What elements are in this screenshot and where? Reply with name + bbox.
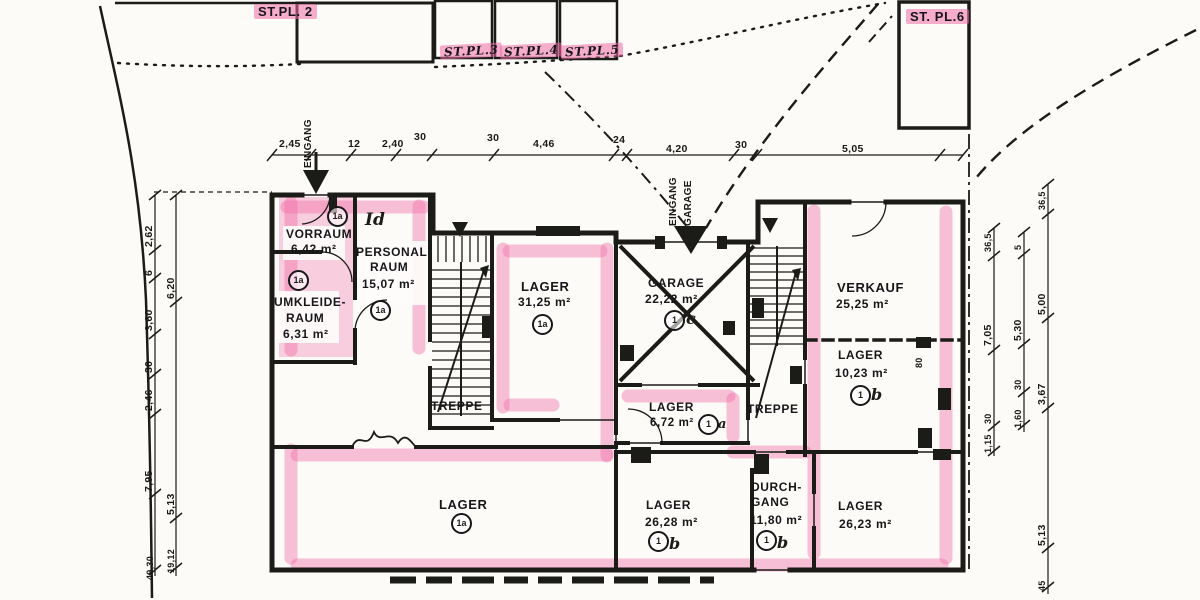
room-area-lager2623: 26,23 m²	[839, 518, 892, 530]
dim-label: 5,05	[842, 144, 864, 155]
room-name-treppe-right: TREPPE	[747, 403, 799, 415]
unit-suffix: c	[686, 311, 696, 327]
dim-label: 49,30	[146, 556, 155, 580]
dim-label: 30	[487, 133, 499, 144]
dim-label: 45	[1038, 580, 1047, 591]
room-name-vorraum: VORRAUM	[286, 228, 352, 240]
dim-label: 30	[414, 132, 426, 143]
unit-badge: 1a	[451, 513, 472, 534]
room-area-verkauf: 25,25 m²	[836, 298, 889, 310]
room-name-lager2628: LAGER	[646, 499, 691, 511]
dim-label: 2,62	[144, 225, 155, 247]
room-name-umkleideraum-1: UMKLEIDE-	[274, 296, 346, 308]
dim-label: 7,95	[144, 470, 155, 492]
entrance-arrow-icon	[303, 170, 329, 194]
dim-label: 2,46	[144, 389, 155, 411]
dim-label: 19,12	[167, 549, 176, 573]
room-name-durchgang-2: GANG	[751, 496, 789, 508]
unit-badge: 1	[648, 531, 669, 552]
door-symbols	[303, 152, 951, 474]
room-area-lager1023: 10,23 m²	[835, 367, 888, 379]
room-area-lager2628: 26,28 m²	[645, 516, 698, 528]
room-name-lager2623: LAGER	[838, 500, 883, 512]
dim-label: 5,00	[1037, 293, 1048, 315]
room-area-vorraum: 6,42 m²	[291, 243, 337, 255]
unit-badge: 1a	[288, 270, 309, 291]
dim-label: 5	[1014, 245, 1023, 250]
dim-label: 30	[144, 361, 155, 373]
dim-label: 4,20	[666, 144, 688, 155]
unit-badge: 1	[664, 310, 685, 331]
room-area-umkleideraum: 6,31 m²	[283, 328, 329, 340]
unit-badge: 1	[850, 385, 871, 406]
room-area-lager31: 31,25 m²	[518, 296, 571, 308]
room-name-umkleideraum-2: RAUM	[286, 312, 324, 324]
dim-label: 6,20	[166, 277, 177, 299]
plan-linework	[0, 0, 1200, 600]
stairs-left	[432, 236, 491, 416]
room-area-garage: 22,22 m²	[645, 293, 698, 305]
entrance-label: EINGANG	[304, 119, 314, 168]
stairs-right	[750, 246, 803, 418]
unit-badge: 1a	[370, 300, 391, 321]
room-name-lager672: LAGER	[649, 401, 694, 413]
garage-entrance-label-line1: EINGANG	[669, 177, 679, 226]
dim-label: 6	[144, 270, 155, 276]
unit-badge: 1a	[532, 314, 553, 335]
parking-boxes	[297, 1, 969, 128]
room-name-treppe-left: TREPPE	[431, 400, 483, 412]
dim-label: 30	[735, 140, 747, 151]
dim-label: 12	[348, 139, 360, 150]
handwritten-note-id: Id	[365, 212, 385, 229]
room-name-lager31: LAGER	[521, 280, 570, 293]
unit-badge: 1	[756, 530, 777, 551]
room-name-lager1023: LAGER	[838, 349, 883, 361]
room-name-durchgang-1: DURCH-	[751, 481, 802, 493]
dim-label: 2,45	[279, 139, 301, 150]
floor-plan-scan: ST.PL. 2 ST.PL.3 ST.PL.4 ST.PL.5 ST. PL.…	[0, 0, 1200, 600]
dim-label: 3,60	[144, 309, 155, 331]
unit-suffix: b	[871, 387, 882, 403]
dim-label: 5,13	[1037, 524, 1048, 546]
dim-label: 1,60	[1014, 409, 1023, 428]
room-name-personalraum-1: PERSONAL	[356, 246, 427, 258]
dim-label: 5,30	[1013, 319, 1024, 341]
dim-label: 36,5	[1038, 191, 1047, 210]
section-marker-icon	[762, 218, 778, 233]
garage-entrance-arrow-icon	[674, 226, 708, 254]
dim-label: 2,40	[382, 139, 404, 150]
room-name-garage: GARAGE	[648, 277, 704, 289]
room-name-lager-main: LAGER	[439, 498, 488, 511]
dim-label: 36,5	[984, 233, 993, 252]
parking-label-stpl2: ST.PL. 2	[254, 4, 317, 19]
room-name-personalraum-2: RAUM	[370, 261, 408, 273]
room-area-lager672: 6,72 m²	[650, 418, 694, 430]
dim-label: 7,05	[983, 324, 994, 346]
dim-label: 80	[915, 357, 924, 368]
dim-label: 30	[984, 413, 993, 424]
room-area-personalraum: 15,07 m²	[362, 278, 415, 290]
dim-label: 30	[1014, 379, 1023, 390]
unit-badge: 1	[698, 414, 719, 435]
unit-suffix: a	[718, 418, 726, 431]
room-area-durchgang: 11,80 m²	[750, 514, 802, 526]
unit-badge: 1a	[327, 206, 348, 227]
room-name-verkauf: VERKAUF	[837, 281, 904, 294]
dim-label: 4,46	[533, 139, 555, 150]
unit-suffix: b	[669, 536, 680, 552]
dim-label: 3,67	[1037, 383, 1048, 405]
dim-label: 1,15	[984, 434, 993, 453]
dim-label: 5,13	[166, 493, 177, 515]
dim-label: 24	[613, 135, 625, 146]
parking-label-stpl6: ST. PL.6	[906, 9, 969, 24]
garage-entrance-label-line2: GARAGE	[684, 180, 694, 226]
unit-suffix: b	[777, 535, 788, 551]
